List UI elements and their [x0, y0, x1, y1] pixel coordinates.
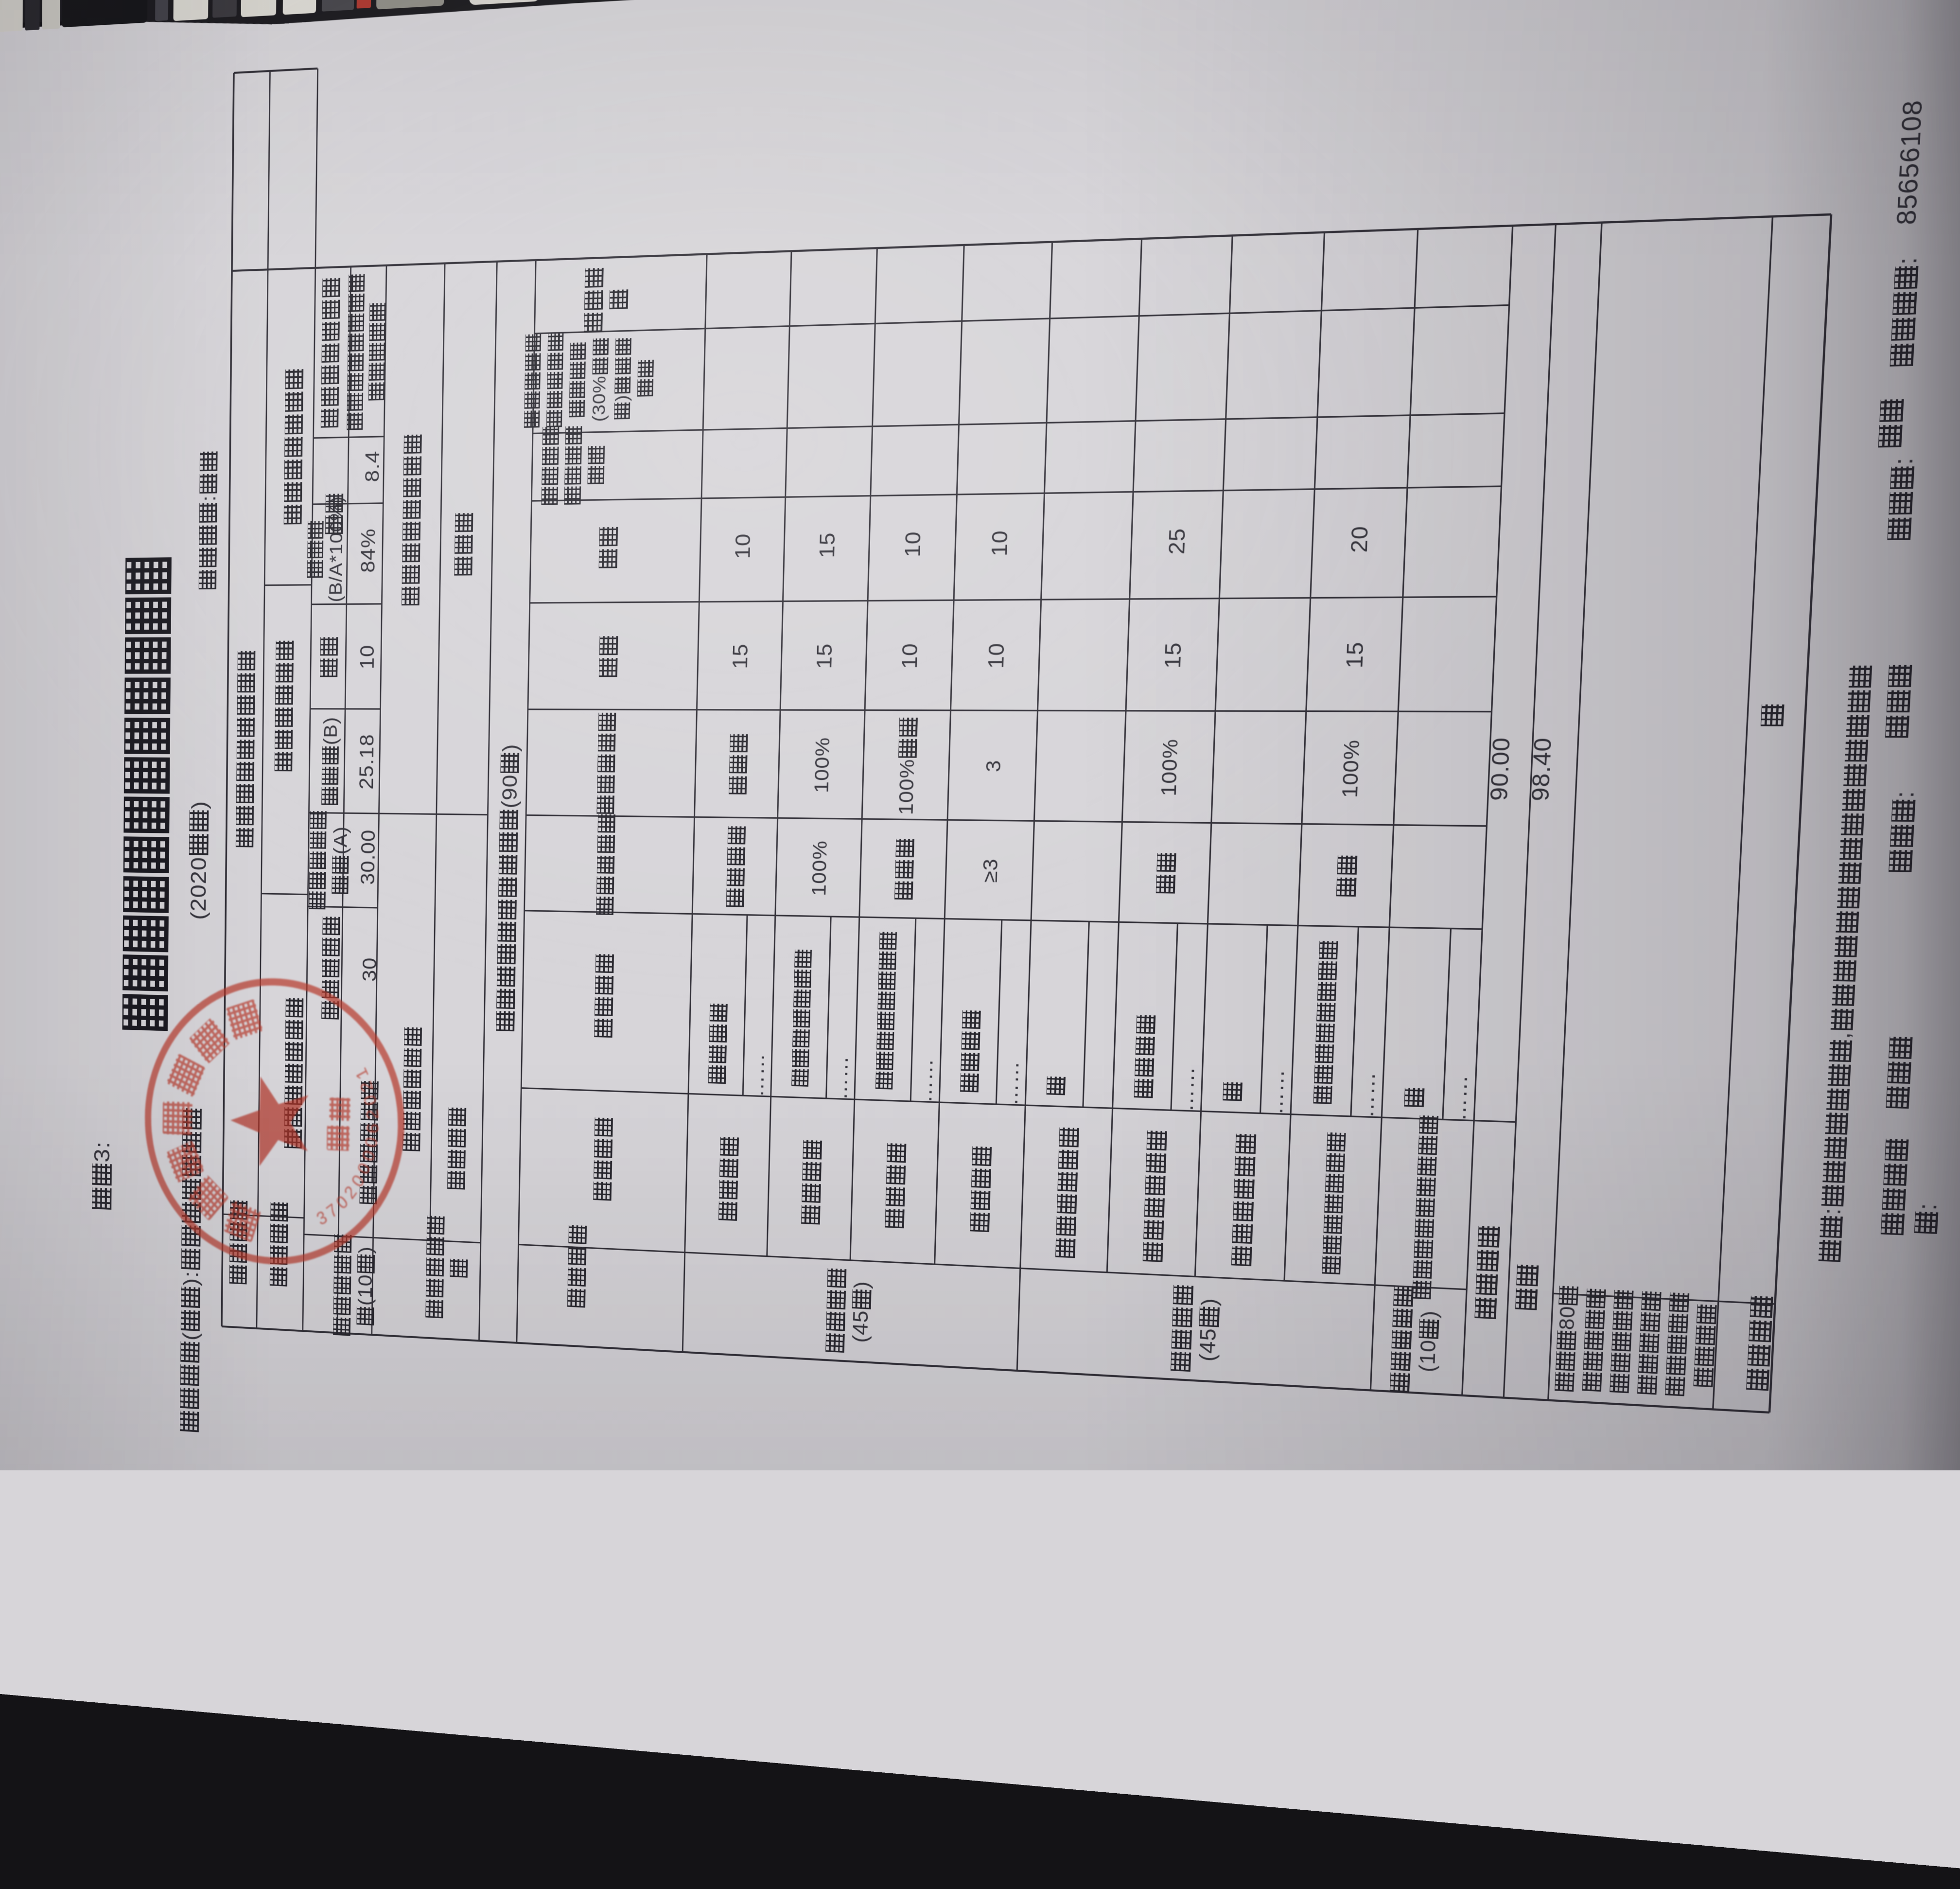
- svg-text:1: 1: [352, 1065, 372, 1083]
- svg-text:0: 0: [362, 1135, 381, 1149]
- svg-text:6: 6: [364, 1123, 382, 1134]
- svg-text:0: 0: [361, 1093, 381, 1107]
- svg-text:2: 2: [363, 1109, 382, 1120]
- svg-text:0: 0: [359, 1148, 379, 1164]
